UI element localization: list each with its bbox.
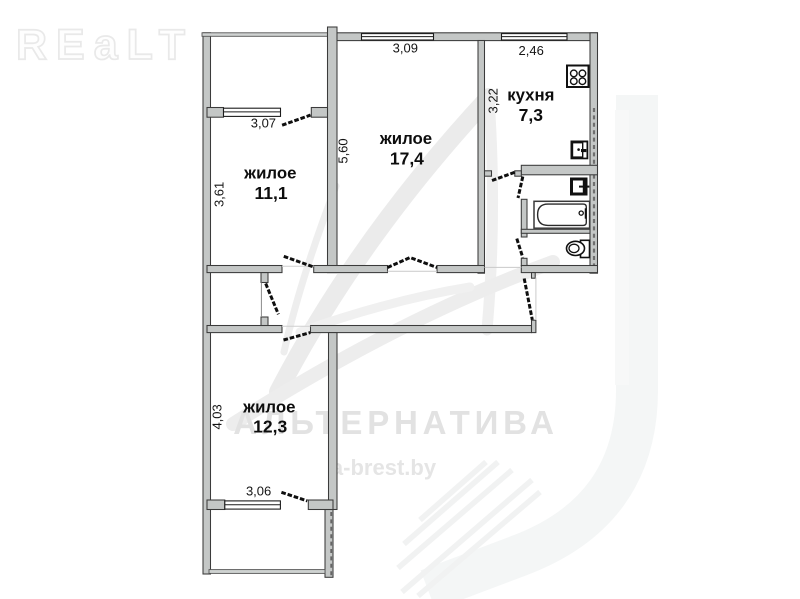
svg-text:жилое: жилое bbox=[242, 397, 295, 416]
svg-text:17,4: 17,4 bbox=[390, 149, 424, 169]
svg-text:жилое: жилое bbox=[379, 129, 432, 148]
svg-text:11,1: 11,1 bbox=[255, 183, 288, 203]
svg-text:кухня: кухня bbox=[507, 86, 554, 105]
svg-text:a-brest.by: a-brest.by bbox=[331, 455, 437, 480]
svg-text:3,22: 3,22 bbox=[486, 88, 501, 113]
svg-text:12,3: 12,3 bbox=[253, 416, 287, 436]
svg-text:3,06: 3,06 bbox=[246, 484, 271, 499]
svg-text:5,60: 5,60 bbox=[336, 138, 351, 163]
svg-text:3,09: 3,09 bbox=[393, 40, 418, 55]
svg-text:REaLT: REaLT bbox=[16, 21, 194, 69]
svg-text:2,46: 2,46 bbox=[519, 43, 544, 58]
svg-text:4,03: 4,03 bbox=[210, 404, 225, 429]
svg-text:7,3: 7,3 bbox=[519, 105, 544, 125]
svg-text:жилое: жилое bbox=[243, 163, 296, 182]
svg-text:3,07: 3,07 bbox=[251, 116, 276, 131]
svg-text:3,61: 3,61 bbox=[211, 182, 226, 207]
